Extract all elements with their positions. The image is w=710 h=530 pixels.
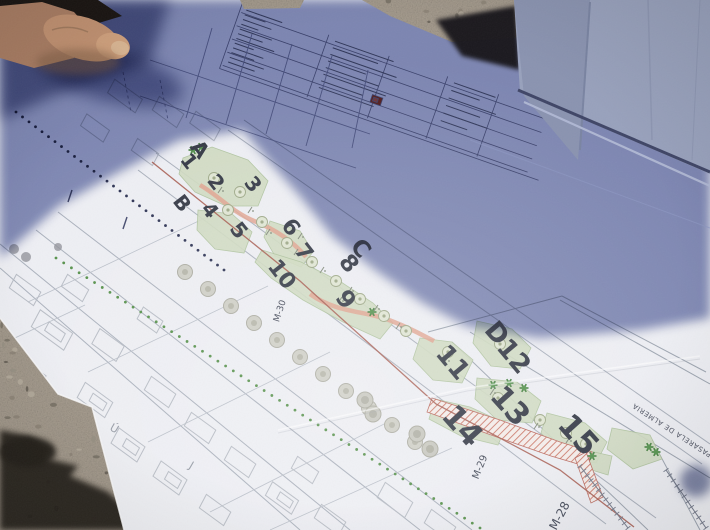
plan-photo-svg: A123B4567C8109D1112131415 M-30M-29M-28 P…	[0, 0, 710, 530]
photo-grain	[0, 0, 710, 530]
photo-site-plan: A123B4567C8109D1112131415 M-30M-29M-28 P…	[0, 0, 710, 530]
